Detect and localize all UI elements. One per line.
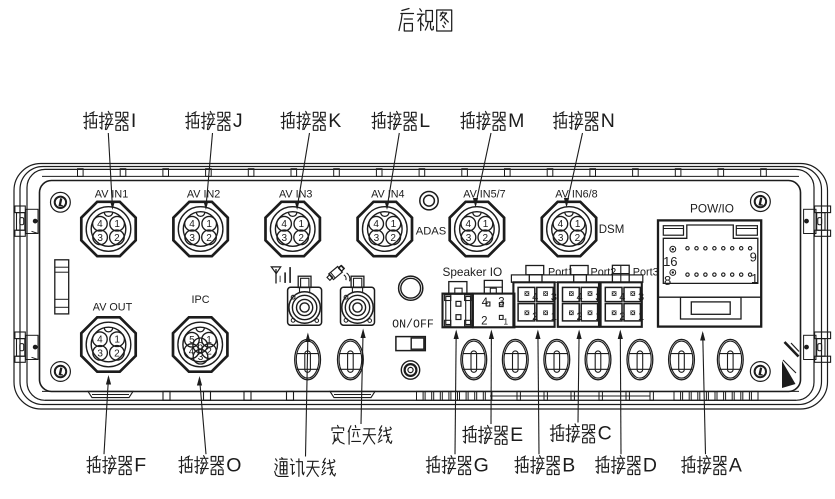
svg-text:1: 1 xyxy=(503,317,508,327)
svg-text:6: 6 xyxy=(197,341,203,352)
svg-text:4: 4 xyxy=(482,297,489,309)
svg-text:DSM: DSM xyxy=(599,224,625,236)
svg-text:AV IN3: AV IN3 xyxy=(279,188,312,200)
svg-text:3: 3 xyxy=(282,233,288,244)
svg-text:E: E xyxy=(510,424,523,446)
svg-text:D: D xyxy=(643,454,657,476)
svg-text:B: B xyxy=(562,454,575,476)
svg-text:4: 4 xyxy=(558,219,564,230)
svg-text:2: 2 xyxy=(483,233,489,244)
svg-text:F: F xyxy=(134,454,146,476)
svg-text:2: 2 xyxy=(481,316,487,328)
svg-text:O: O xyxy=(226,454,241,476)
svg-text:3: 3 xyxy=(97,233,103,244)
svg-text:1: 1 xyxy=(206,335,212,346)
svg-text:3: 3 xyxy=(374,233,380,244)
svg-text:2: 2 xyxy=(206,233,212,244)
svg-text:9: 9 xyxy=(750,250,757,265)
svg-text:8: 8 xyxy=(664,273,671,288)
svg-text:4: 4 xyxy=(97,219,103,230)
svg-text:5: 5 xyxy=(189,335,195,346)
svg-text:1: 1 xyxy=(751,271,758,286)
svg-text:16: 16 xyxy=(663,254,677,269)
svg-text:2: 2 xyxy=(298,233,304,244)
svg-text:1: 1 xyxy=(391,219,397,230)
svg-text:1: 1 xyxy=(299,219,305,230)
svg-text:4: 4 xyxy=(373,219,379,230)
svg-text:IPC: IPC xyxy=(192,294,210,306)
svg-text:AV IN2: AV IN2 xyxy=(187,188,220,200)
svg-text:2: 2 xyxy=(114,348,120,359)
svg-text:K: K xyxy=(328,110,341,132)
svg-text:C: C xyxy=(598,423,612,445)
svg-text:2: 2 xyxy=(390,233,396,244)
svg-text:I: I xyxy=(131,110,136,132)
svg-text:3: 3 xyxy=(638,292,644,304)
svg-text:2: 2 xyxy=(575,233,581,244)
svg-text:Speaker IO: Speaker IO xyxy=(443,265,503,279)
svg-text:1: 1 xyxy=(551,311,557,323)
svg-text:POW/IO: POW/IO xyxy=(690,202,734,216)
svg-text:Port3: Port3 xyxy=(633,267,659,279)
svg-text:2: 2 xyxy=(114,233,120,244)
svg-text:1: 1 xyxy=(114,335,120,346)
svg-text:1: 1 xyxy=(575,219,581,230)
svg-text:ON/OFF: ON/OFF xyxy=(392,318,434,331)
svg-text:AV IN6/8: AV IN6/8 xyxy=(555,188,597,200)
svg-text:ADAS: ADAS xyxy=(416,226,446,238)
svg-text:1: 1 xyxy=(114,219,120,230)
svg-text:A: A xyxy=(729,454,742,476)
svg-text:4: 4 xyxy=(189,347,195,358)
svg-text:1: 1 xyxy=(638,311,644,323)
svg-text:G: G xyxy=(474,454,489,476)
svg-text:4: 4 xyxy=(189,219,195,230)
svg-text:3: 3 xyxy=(551,292,557,304)
svg-text:3: 3 xyxy=(189,233,195,244)
svg-text:1: 1 xyxy=(483,219,489,230)
svg-text:4: 4 xyxy=(281,219,287,230)
svg-text:3: 3 xyxy=(558,233,564,244)
svg-text:N: N xyxy=(601,110,615,132)
svg-text:AV IN5/7: AV IN5/7 xyxy=(463,188,505,200)
svg-text:3: 3 xyxy=(466,233,472,244)
svg-text:J: J xyxy=(233,110,243,132)
svg-text:M: M xyxy=(508,110,524,132)
svg-text:AV OUT: AV OUT xyxy=(93,302,133,314)
svg-text:4: 4 xyxy=(466,219,472,230)
svg-text:AV IN4: AV IN4 xyxy=(371,188,404,200)
svg-text:2: 2 xyxy=(206,347,212,358)
svg-text:4: 4 xyxy=(97,335,103,346)
svg-text:L: L xyxy=(419,110,430,132)
svg-text:1: 1 xyxy=(206,219,212,230)
svg-text:3: 3 xyxy=(198,352,204,363)
svg-text:3: 3 xyxy=(97,348,103,359)
